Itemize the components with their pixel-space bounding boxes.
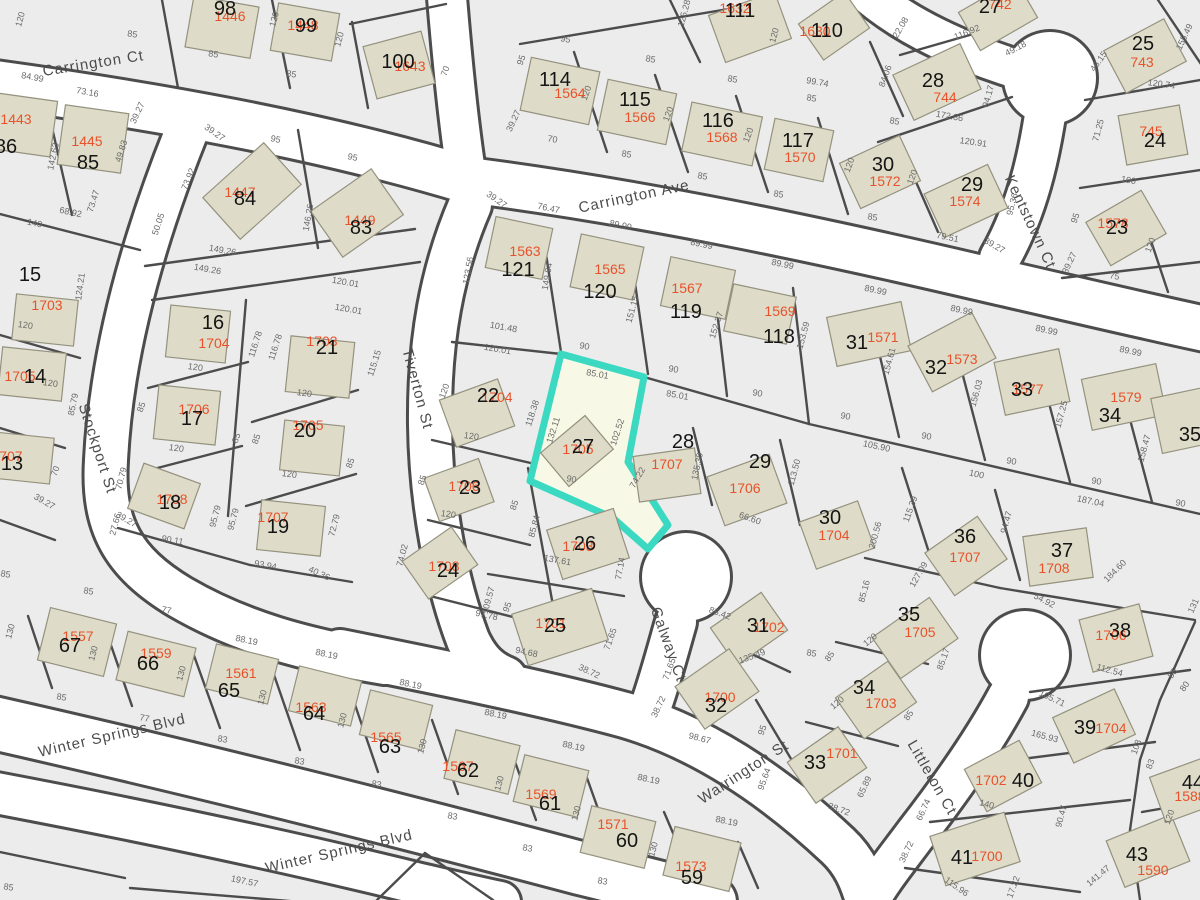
- lot-number-label[interactable]: 100: [381, 51, 414, 73]
- lot-number-label[interactable]: 28: [922, 70, 944, 92]
- dimension-label: 85: [645, 53, 657, 65]
- lot-number-label[interactable]: 66: [137, 653, 159, 675]
- dimension-label: 90: [921, 430, 933, 442]
- lot-number-label[interactable]: 98: [214, 0, 236, 20]
- lot-number-label[interactable]: 21: [316, 337, 338, 359]
- dimension-label: 85: [56, 691, 68, 703]
- parcel-map[interactable]: 8584.99858573.1639.2749.83142.6373.4768.…: [0, 0, 1200, 900]
- dimension-label: 85: [0, 568, 11, 580]
- lot-number-label[interactable]: 25: [1132, 33, 1154, 55]
- dimension-label: 90: [1091, 475, 1103, 487]
- dimension-label: 70: [547, 133, 559, 145]
- dimension-label: 95: [560, 33, 572, 45]
- lot-number-label[interactable]: 61: [539, 793, 561, 815]
- lot-number-label[interactable]: 19: [267, 516, 289, 538]
- dimension-label: 85: [806, 647, 818, 659]
- lot-number-label[interactable]: 59: [681, 867, 703, 889]
- house-number-label: 1566: [624, 109, 655, 125]
- dimension-label: 83: [371, 778, 383, 790]
- dimension-label: 85: [867, 211, 879, 223]
- lot-number-label[interactable]: 120: [583, 281, 616, 303]
- house-number-label: 1702: [975, 772, 1006, 788]
- dimension-label: 77: [161, 604, 173, 616]
- lot-number-label[interactable]: 13: [1, 453, 23, 475]
- lot-number-label[interactable]: 85: [77, 152, 99, 174]
- dimension-label: 85: [208, 48, 219, 59]
- lot-number-label[interactable]: 43: [1126, 844, 1148, 866]
- house-number-label: 1700: [971, 848, 1002, 864]
- dimension-label: 90: [840, 410, 852, 422]
- lot-number-label[interactable]: 26: [574, 533, 596, 555]
- house-number-label: 1579: [1110, 389, 1141, 405]
- dimension-label: 85: [697, 170, 709, 182]
- house-number-label: 1443: [0, 111, 31, 127]
- house-number-label: 1704: [818, 527, 849, 543]
- lot-number-label[interactable]: 30: [819, 507, 841, 529]
- dimension-label: 83: [597, 875, 609, 887]
- lot-number-label[interactable]: 38: [1109, 620, 1131, 642]
- lot-number-label[interactable]: 33: [1011, 379, 1033, 401]
- lot-number-label[interactable]: 99: [295, 15, 317, 37]
- dimension-label: 120: [168, 442, 184, 454]
- lot-number-label[interactable]: 116: [702, 110, 734, 132]
- dimension-label: 85: [127, 28, 138, 39]
- lot-number-label[interactable]: 114: [539, 69, 571, 91]
- house-number-label: 1563: [509, 243, 540, 259]
- lot-number-label[interactable]: 14: [24, 366, 46, 388]
- lot-number-label[interactable]: 83: [350, 217, 372, 239]
- lot-number-label[interactable]: 22: [477, 385, 499, 407]
- lot-number-label[interactable]: 18: [159, 492, 181, 514]
- lot-number-label[interactable]: 24: [1144, 130, 1166, 152]
- dimension-label: 90: [752, 387, 764, 399]
- lot-number-label[interactable]: 29: [749, 451, 771, 473]
- dimension-label: 95: [347, 151, 359, 163]
- lot-number-label[interactable]: 44: [1182, 772, 1200, 794]
- house-number-label: 1704: [1095, 720, 1126, 736]
- lot-number-label[interactable]: 20: [294, 420, 316, 442]
- littleton-ct-bulb: [981, 611, 1069, 699]
- north-stub-west: [446, 0, 466, 172]
- house-number-label: 1707: [651, 456, 682, 472]
- dimension-label: 90: [566, 473, 578, 485]
- dimension-label: 120: [463, 430, 479, 442]
- lot-number-label[interactable]: 16: [202, 312, 224, 334]
- house-number-label: 1569: [764, 303, 795, 319]
- dimension-label: 90: [1175, 497, 1187, 509]
- house-number-label: 1708: [1038, 560, 1069, 576]
- lot-number-label[interactable]: 31: [747, 615, 769, 637]
- dimension-label: 83: [447, 810, 459, 822]
- dimension-label: 120: [187, 361, 203, 373]
- lot-number-label[interactable]: 111: [725, 0, 755, 22]
- lot-number-label[interactable]: 29: [961, 174, 983, 196]
- house-number-label: 1445: [71, 133, 102, 149]
- lot-number-label[interactable]: 15: [19, 264, 41, 286]
- lot-number-label[interactable]: 35: [1179, 424, 1200, 446]
- dimension-label: 85: [889, 115, 901, 127]
- dimension-label: 85: [83, 585, 95, 597]
- dimension-label: 83: [522, 842, 534, 854]
- lot-number-label[interactable]: 41: [951, 847, 973, 869]
- house-number-label: 1571: [867, 329, 898, 345]
- lot-number-label[interactable]: 28: [672, 431, 694, 453]
- house-number-label: 1704: [198, 335, 229, 351]
- lot-number-label[interactable]: 27: [979, 0, 1001, 18]
- lot-number-label[interactable]: 67: [59, 635, 81, 657]
- lot-number-label[interactable]: 27: [572, 436, 594, 458]
- lot-number-label[interactable]: 39: [1074, 717, 1096, 739]
- dimension-label: 83: [217, 733, 229, 745]
- lot-number-label[interactable]: 23: [1106, 217, 1128, 239]
- lot-number-label[interactable]: 37: [1051, 540, 1073, 562]
- lot-number-label[interactable]: 64: [303, 703, 325, 725]
- lot-number-label[interactable]: 40: [1012, 770, 1034, 792]
- house-number-label: 1705: [904, 624, 935, 640]
- dimension-label: 90: [668, 363, 680, 375]
- house-number-label: 1703: [31, 297, 62, 313]
- dimension-label: 120: [296, 387, 312, 399]
- lot-number-label[interactable]: 17: [181, 408, 203, 430]
- dimension-label: 90: [1006, 455, 1018, 467]
- lot-number-label[interactable]: 33: [804, 752, 826, 774]
- lot-number-label[interactable]: 36: [954, 526, 976, 548]
- lot-number-label[interactable]: 62: [457, 760, 479, 782]
- lot-number-label[interactable]: 34: [853, 677, 875, 699]
- lot-number-label[interactable]: 119: [670, 301, 702, 323]
- dimension-label: 83: [294, 755, 306, 767]
- dimension-label: 85: [621, 148, 633, 160]
- lot-number-label[interactable]: 110: [811, 20, 843, 42]
- map-canvas[interactable]: 8584.99858573.1639.2749.83142.6373.4768.…: [0, 0, 1200, 900]
- dimension-label: 120: [281, 468, 297, 480]
- house-number-label: 1565: [594, 261, 625, 277]
- lot-number-label[interactable]: 31: [846, 332, 868, 354]
- lot-number-label[interactable]: 86: [0, 136, 17, 158]
- lot-number-label[interactable]: 34: [1099, 405, 1121, 427]
- lot-number-label[interactable]: 63: [379, 736, 401, 758]
- dimension-label: 85: [286, 68, 297, 79]
- house-number-label: 1707: [949, 549, 980, 565]
- lot-number-label[interactable]: 117: [782, 130, 814, 152]
- house-number-label: 1701: [826, 745, 857, 761]
- lot-number-label[interactable]: 25: [544, 615, 566, 637]
- lot-number-label[interactable]: 60: [616, 830, 638, 852]
- lot-number-label[interactable]: 24: [437, 560, 459, 582]
- lot-number-label[interactable]: 65: [218, 680, 240, 702]
- dimension-label: 95: [270, 133, 282, 145]
- house-number-label: 1567: [671, 280, 702, 296]
- house-number-label: 743: [1130, 54, 1154, 70]
- lot-number-label[interactable]: 118: [763, 326, 795, 348]
- lot-number-label[interactable]: 30: [872, 154, 894, 176]
- lot-number-label[interactable]: 35: [898, 604, 920, 626]
- house-number-label: 1561: [225, 665, 256, 681]
- dimension-label: 90: [579, 340, 591, 352]
- lot-number-label[interactable]: 121: [501, 259, 534, 281]
- dimension-label: 75: [1109, 270, 1121, 282]
- lot-number-label[interactable]: 32: [925, 357, 947, 379]
- lot-number-label[interactable]: 23: [459, 477, 481, 499]
- dimension-label: 120: [17, 319, 33, 331]
- dimension-label: 85: [3, 881, 15, 893]
- dimension-label: 85: [773, 188, 785, 200]
- lot-number-label[interactable]: 115: [619, 89, 651, 111]
- dimension-label: 85: [727, 73, 739, 85]
- house-number-label: 1573: [946, 351, 977, 367]
- dimension-label: 85: [806, 92, 818, 104]
- lot-number-label[interactable]: 32: [705, 695, 727, 717]
- house-number-label: 1706: [729, 480, 760, 496]
- lot-number-label[interactable]: 84: [234, 188, 256, 210]
- dimension-label: 120: [440, 508, 456, 520]
